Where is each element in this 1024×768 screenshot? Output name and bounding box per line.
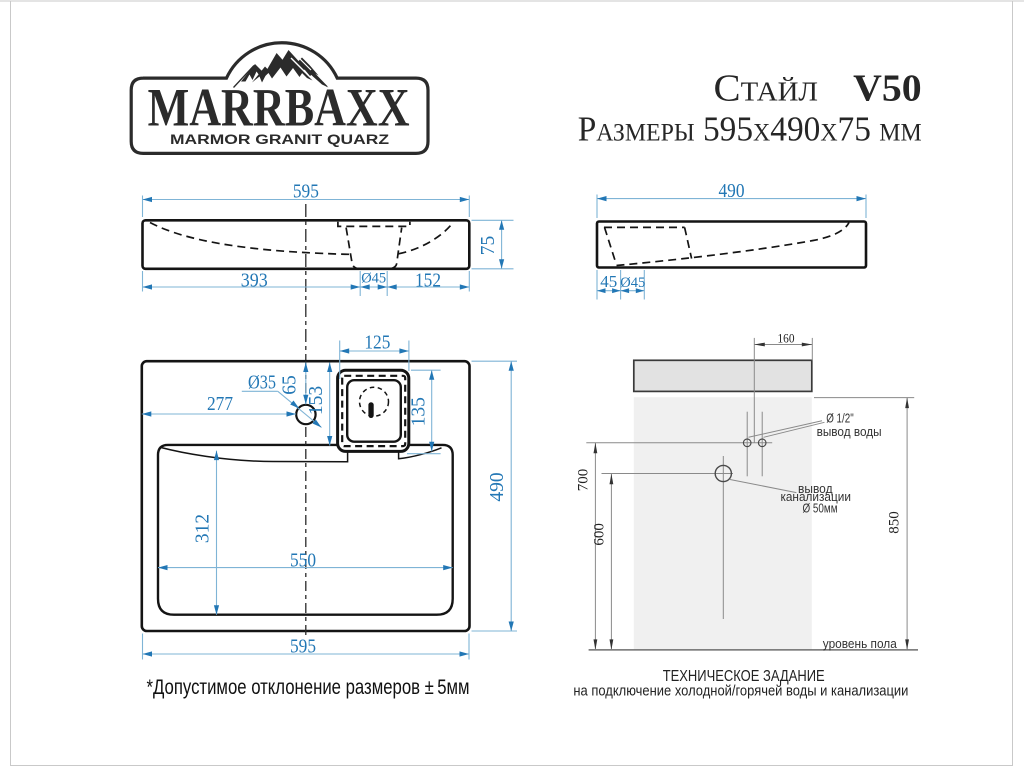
svg-text:152: 152 <box>415 269 441 291</box>
svg-text:700: 700 <box>576 469 592 492</box>
svg-text:Стайл: Стайл <box>714 68 819 110</box>
svg-text:65: 65 <box>280 375 301 395</box>
svg-text:Ø 1/2": Ø 1/2" <box>826 412 854 426</box>
svg-text:595: 595 <box>290 635 316 657</box>
svg-text:600: 600 <box>591 523 607 546</box>
svg-text:393: 393 <box>241 269 268 291</box>
svg-text:75: 75 <box>478 236 499 256</box>
svg-text:Размеры 595х490х75 мм: Размеры 595х490х75 мм <box>578 110 922 149</box>
svg-text:V50: V50 <box>853 68 922 110</box>
svg-text:MARRBAXX: MARRBAXX <box>148 78 410 138</box>
svg-text:850: 850 <box>887 511 903 534</box>
svg-text:Ø45: Ø45 <box>361 271 386 287</box>
svg-text:595: 595 <box>293 180 319 202</box>
svg-text:153: 153 <box>306 386 327 415</box>
svg-text:550: 550 <box>290 549 316 571</box>
svg-text:MARMOR GRANIT QUARZ: MARMOR GRANIT QUARZ <box>170 132 389 147</box>
svg-text:490: 490 <box>719 180 745 202</box>
svg-text:45: 45 <box>600 272 617 291</box>
svg-text:на подключение холодной/горяче: на подключение холодной/горячей воды и к… <box>573 682 908 699</box>
svg-text:312: 312 <box>193 514 214 543</box>
svg-text:277: 277 <box>207 393 233 415</box>
svg-text:125: 125 <box>364 332 390 354</box>
svg-text:Ø35: Ø35 <box>248 372 276 394</box>
svg-text:490: 490 <box>487 472 508 501</box>
svg-text:уровень пола: уровень пола <box>823 636 898 651</box>
svg-text:160: 160 <box>778 331 795 346</box>
svg-text:135: 135 <box>409 397 430 426</box>
svg-text:*Допустимое отклонение размеро: *Допустимое отклонение размеров ± 5мм <box>147 675 470 699</box>
svg-text:вывод воды: вывод воды <box>817 425 882 439</box>
svg-text:Ø 50мм: Ø 50мм <box>803 501 838 515</box>
svg-text:Ø45: Ø45 <box>620 275 645 291</box>
